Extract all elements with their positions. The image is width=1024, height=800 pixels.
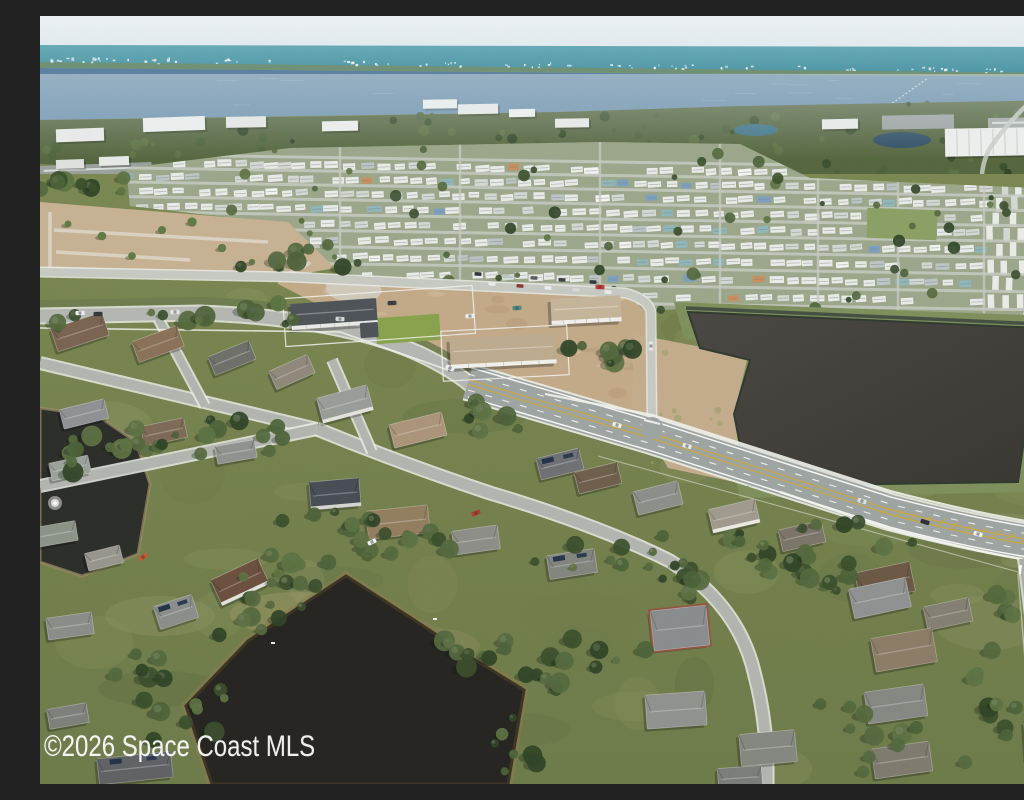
aerial-photograph: ©2026 Space Coast MLS [40, 16, 1024, 784]
scene-canvas [40, 16, 1024, 784]
